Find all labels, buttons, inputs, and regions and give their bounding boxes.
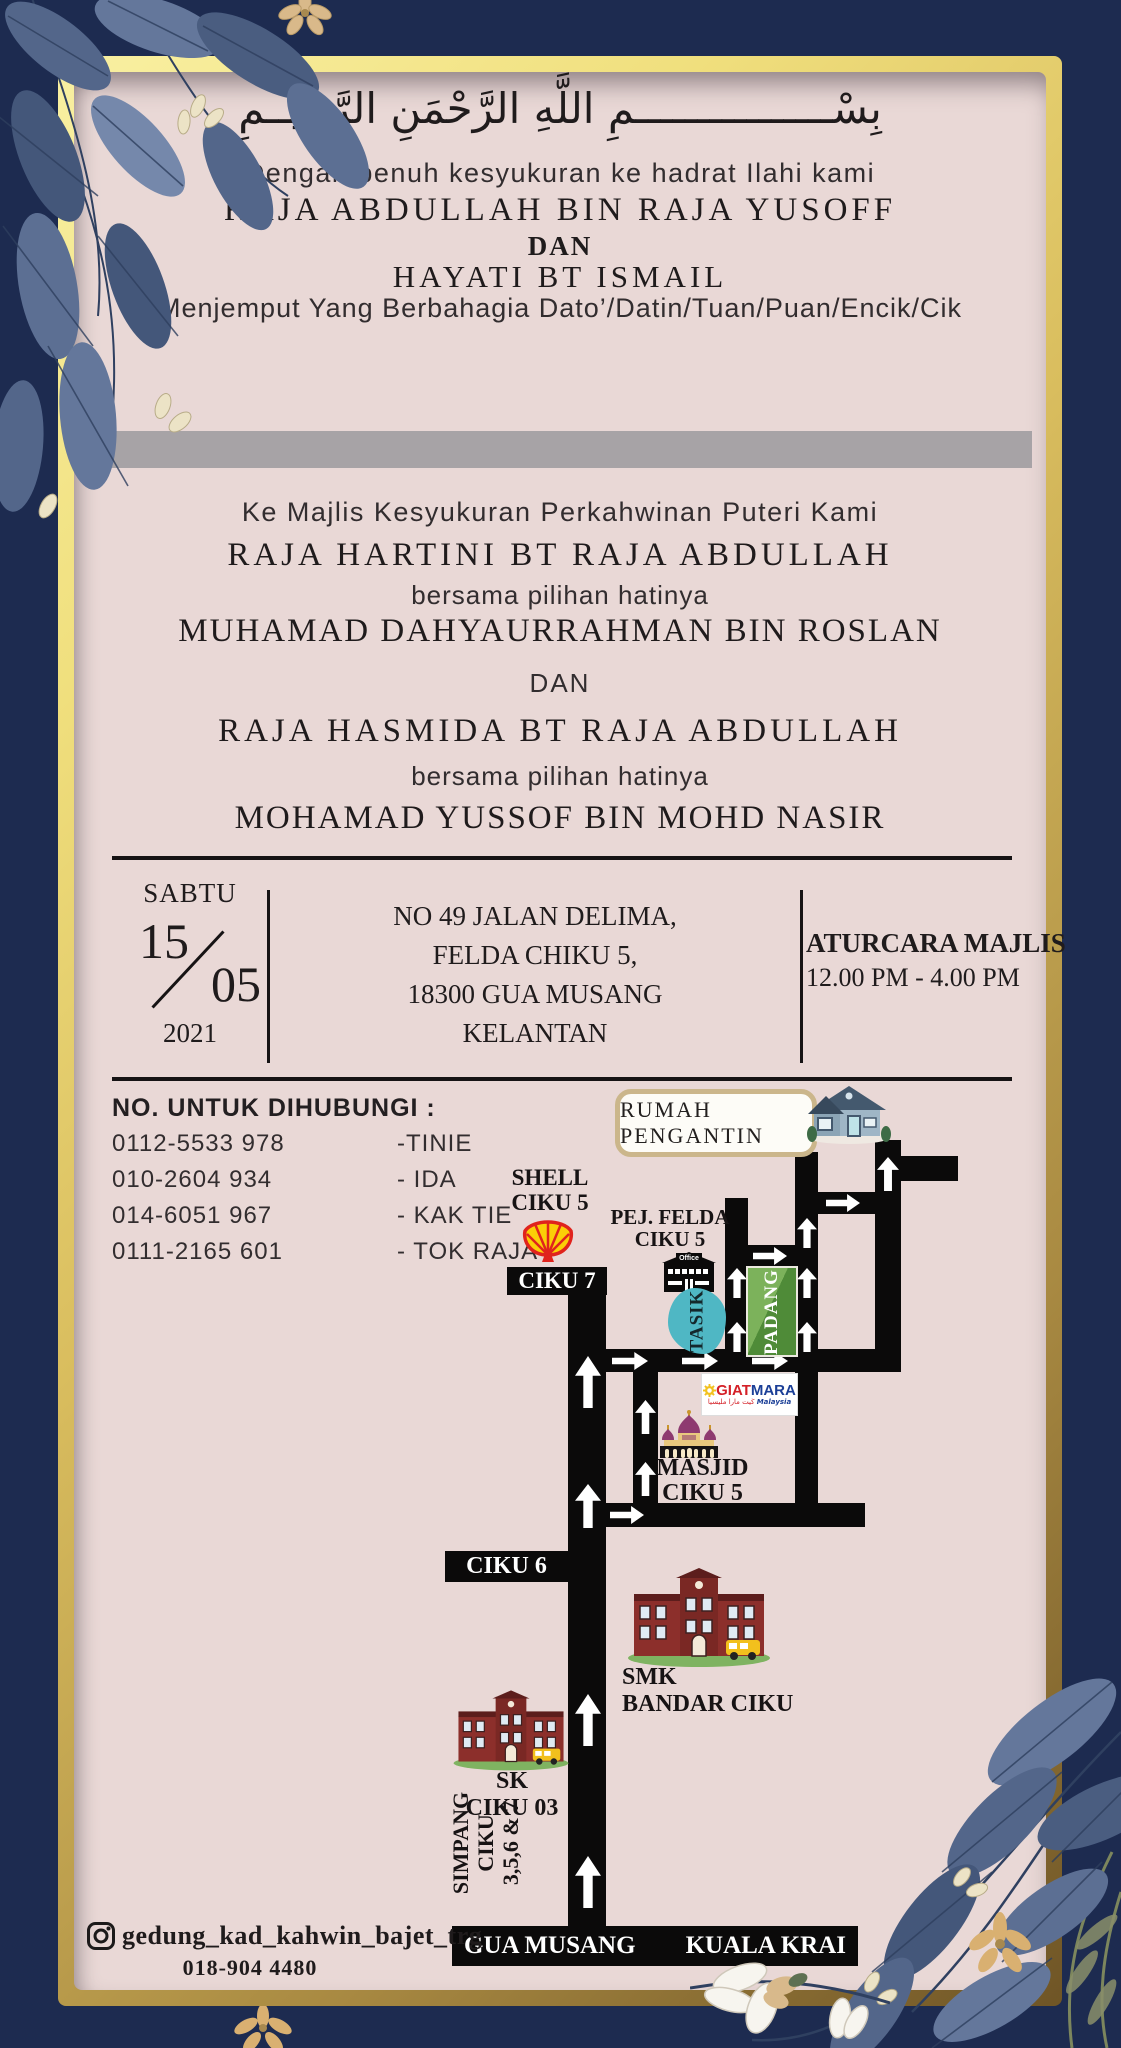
groom-1-name: MUHAMAD DAHYAURRAHMAN BIN ROSLAN — [74, 613, 1046, 650]
giatmara-malaysia-text: Malaysia — [757, 1398, 791, 1406]
contact-number: 014-6051 967 — [112, 1202, 397, 1230]
guest-name-blank-bar — [88, 431, 1032, 468]
address-line-3: 18300 GUA MUSANG — [300, 975, 770, 1014]
contact-label: -TINIE — [397, 1130, 472, 1158]
pej-felda-line2: CIKU 5 — [600, 1228, 740, 1250]
giatmara-wordmark: GIATMARA — [703, 1383, 796, 1398]
event-month-number: 05 — [196, 955, 276, 1013]
address-line-2: FELDA CHIKU 5, — [300, 936, 770, 975]
tasik-label: TASIK — [686, 1290, 708, 1353]
and-separator-1: DAN — [74, 231, 1046, 262]
mara-text: MARA — [751, 1382, 796, 1399]
giatmara-subline: ڬيت مارا مليسيا Malaysia — [708, 1398, 791, 1406]
contact-label: - IDA — [397, 1166, 457, 1194]
agenda-time: 12.00 PM - 4.00 PM — [806, 963, 1018, 993]
simpang-line3: 3,5,6 & 7 — [498, 1753, 523, 1933]
shell-label-line1: SHELL — [490, 1165, 610, 1190]
event-year: 2021 — [112, 1018, 268, 1049]
mother-name: HAYATI BT ISMAIL — [74, 259, 1046, 295]
event-heading: Ke Majlis Kesyukuran Perkahwinan Puteri … — [74, 497, 1046, 528]
smk-line2: BANDAR CIKU — [622, 1691, 902, 1718]
simpang-line1: SIMPANG — [448, 1753, 473, 1933]
father-name: RAJA ABDULLAH BIN RAJA YUSOFF — [74, 192, 1046, 229]
footer-phone: 018-904 4480 — [130, 1955, 370, 1981]
shell-station-label: SHELL CIKU 5 — [490, 1165, 610, 1215]
contacts-title: NO. UNTUK DIHUBUNGI : — [112, 1094, 612, 1123]
and-separator-2: DAN — [74, 668, 1046, 699]
event-day: SABTU — [112, 878, 268, 909]
invite-line: Menjemput Yang Berbahagia Dato’/Datin/Tu… — [74, 293, 1046, 324]
contact-number: 010-2604 934 — [112, 1166, 397, 1194]
contact-number: 0111-2165 601 — [112, 1238, 397, 1266]
divider-rule-top — [112, 856, 1012, 860]
shell-label-line2: CIKU 5 — [490, 1190, 610, 1215]
agenda-title: ATURCARA MAJLIS — [806, 928, 1018, 959]
rumah-pengantin-box: RUMAH PENGANTIN — [615, 1089, 817, 1157]
pej-felda-label: PEJ. FELDA CIKU 5 — [600, 1206, 740, 1250]
contact-row: 014-6051 967 - KAK TIE — [112, 1202, 512, 1230]
smk-label: SMK BANDAR CIKU — [622, 1664, 902, 1718]
bottom-left-flower-decoration — [228, 2006, 298, 2048]
top-gold-flower-decoration — [278, 0, 332, 36]
giatmara-gear-icon — [703, 1384, 716, 1397]
invitation-card: بِسْــــــــــــــــمِ اللَّهِ الرَّحْمَ… — [0, 0, 1121, 2048]
masjid-line1: MASJID — [630, 1456, 775, 1481]
masjid-label: MASJID CIKU 5 — [630, 1456, 775, 1506]
ciku7-label: CIKU 7 — [518, 1268, 595, 1293]
groom-2-name: MOHAMAD YUSSOF BIN MOHD NASIR — [74, 800, 1046, 837]
ciku6-road-label-box: CIKU 6 — [445, 1551, 568, 1582]
divider-rule-bottom — [112, 1077, 1012, 1081]
giat-text: GIAT — [716, 1382, 751, 1399]
contact-label: - TOK RAJA — [397, 1238, 538, 1266]
road-horizontal-lower — [606, 1503, 865, 1527]
details-divider-2 — [800, 890, 803, 1063]
simpang-label: SIMPANG CIKU 3,5,6 & 7 — [448, 1753, 528, 1933]
ciku6-label: CIKU 6 — [466, 1553, 547, 1579]
with-line-1: bersama pilihan hatinya — [74, 580, 1046, 611]
address-line-4: KELANTAN — [300, 1014, 770, 1053]
giatmara-jawi-text: ڬيت مارا مليسيا — [708, 1398, 755, 1406]
instagram-handle: gedung_kad_kahwin_bajet_trg — [122, 1921, 442, 1951]
bismillah-calligraphy: بِسْــــــــــــــــمِ اللَّهِ الرَّحْمَ… — [74, 84, 1046, 133]
padang-field-shape: PADANG — [746, 1266, 798, 1357]
with-line-2: bersama pilihan hatinya — [74, 761, 1046, 792]
contact-row: 0112-5533 978 -TINIE — [112, 1130, 472, 1158]
ciku7-road-label-box: CIKU 7 — [507, 1267, 607, 1295]
details-divider-1 — [267, 890, 270, 1063]
contact-row: 0111-2165 601 - TOK RAJA — [112, 1238, 538, 1266]
bride-1-name: RAJA HARTINI BT RAJA ABDULLAH — [74, 537, 1046, 574]
simpang-line2: CIKU — [473, 1753, 498, 1933]
intro-line: Dengan penuh kesyukuran ke hadrat Ilahi … — [74, 158, 1046, 189]
contact-number: 0112-5533 978 — [112, 1130, 397, 1158]
giatmara-logo: GIATMARA ڬيت مارا مليسيا Malaysia — [701, 1373, 798, 1416]
rumah-pengantin-label: RUMAH PENGANTIN — [620, 1097, 812, 1149]
padang-label: PADANG — [761, 1269, 783, 1355]
contact-row: 010-2604 934 - IDA — [112, 1166, 457, 1194]
smk-line1: SMK — [622, 1664, 902, 1691]
address-line-1: NO 49 JALAN DELIMA, — [300, 897, 770, 936]
road-stub-right — [901, 1156, 958, 1181]
masjid-line2: CIKU 5 — [630, 1481, 775, 1506]
kuala-krai-label: KUALA KRAI — [686, 1926, 846, 1966]
bride-2-name: RAJA HASMIDA BT RAJA ABDULLAH — [74, 713, 1046, 750]
pej-felda-line1: PEJ. FELDA — [600, 1206, 740, 1228]
